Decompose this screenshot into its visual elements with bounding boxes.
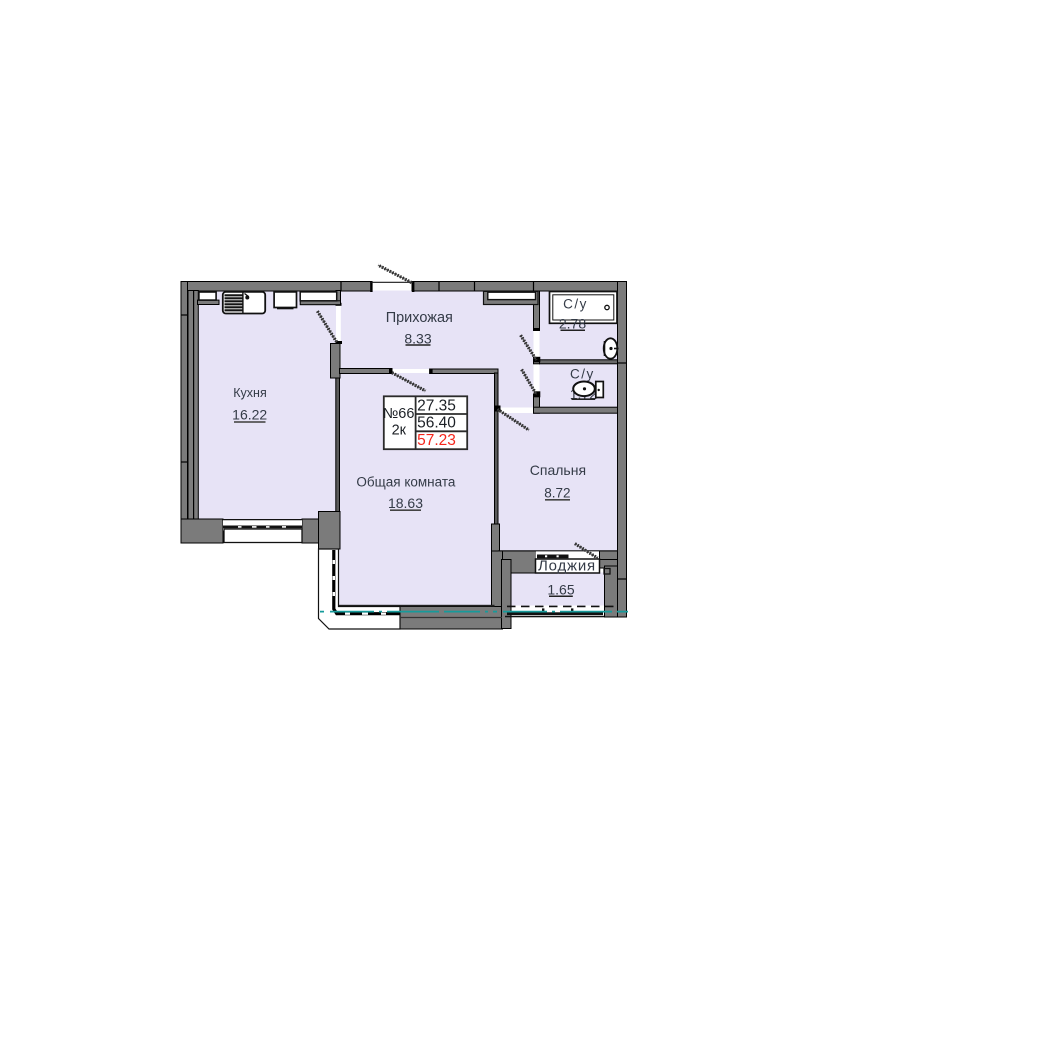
svg-text:Общая комната: Общая комната (356, 475, 455, 490)
svg-text:2.78: 2.78 (559, 315, 586, 331)
svg-text:18.63: 18.63 (388, 495, 423, 511)
svg-text:Прихожая: Прихожая (386, 310, 453, 326)
svg-text:2к: 2к (392, 422, 407, 438)
svg-text:Спальня: Спальня (530, 462, 586, 478)
svg-text:27.35: 27.35 (417, 397, 456, 414)
svg-text:Лоджия: Лоджия (538, 557, 596, 574)
svg-text:56.40: 56.40 (417, 415, 456, 432)
svg-text:8.72: 8.72 (544, 485, 570, 500)
svg-text:1.65: 1.65 (547, 581, 574, 597)
svg-text:8.33: 8.33 (404, 330, 431, 346)
svg-text:57.23: 57.23 (417, 432, 456, 449)
svg-text:Кухня: Кухня (233, 386, 266, 400)
svg-text:№66: №66 (383, 406, 415, 422)
svg-text:С/у: С/у (563, 296, 588, 311)
svg-text:С/у: С/у (570, 366, 595, 381)
svg-text:16.22: 16.22 (232, 407, 267, 423)
